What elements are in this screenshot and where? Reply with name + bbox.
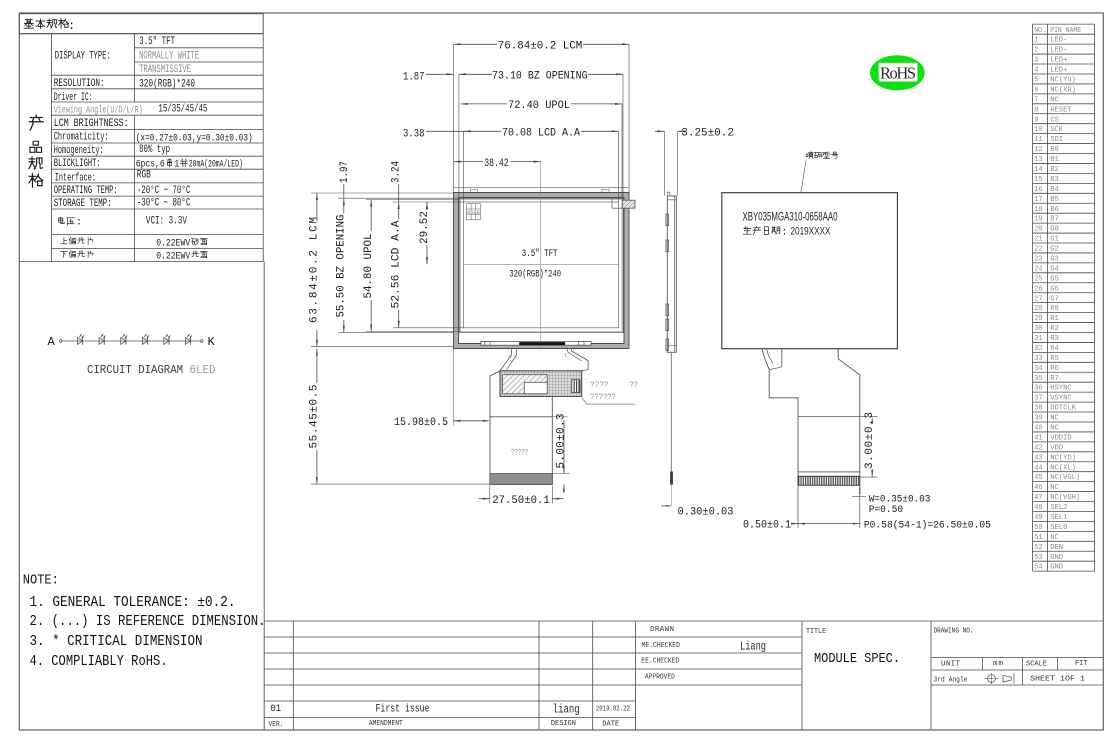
svg-text:30: 30 (1034, 325, 1043, 333)
svg-text:12: 12 (1034, 146, 1042, 154)
svg-text:SEL0: SEL0 (1050, 524, 1068, 532)
svg-text:????: ???? (590, 380, 609, 390)
svg-text:LED-: LED- (1050, 47, 1067, 55)
svg-text:G3: G3 (1050, 255, 1059, 263)
svg-text:39: 39 (1034, 415, 1042, 423)
svg-text:01: 01 (270, 703, 281, 715)
svg-text:G2: G2 (1050, 246, 1059, 254)
svg-text:mm: mm (993, 660, 1003, 668)
svg-text:4. COMPLIABLY RoHS.: 4. COMPLIABLY RoHS. (30, 654, 168, 670)
svg-text:Chromaticity:: Chromaticity: (54, 132, 109, 144)
svg-text:51: 51 (1034, 534, 1043, 542)
svg-text:43: 43 (1034, 454, 1043, 462)
svg-text:NORMALLY WHITE: NORMALLY WHITE (139, 50, 199, 62)
svg-text:NC: NC (1050, 484, 1059, 492)
svg-text:B0: B0 (1050, 146, 1059, 154)
svg-text:1: 1 (174, 159, 179, 171)
svg-text:2019XXXX: 2019XXXX (791, 226, 831, 238)
svg-text:52.56 LCD A.A: 52.56 LCD A.A (391, 220, 403, 308)
svg-text:1. GENERAL TOLERANCE: ±0.2.: 1. GENERAL TOLERANCE: ±0.2. (30, 595, 236, 611)
svg-text:??????: ?????? (590, 392, 616, 402)
svg-text:(x=0.27±0.03,y=0.30±0.03): (x=0.27±0.03,y=0.30±0.03) (136, 133, 253, 145)
svg-text:29: 29 (1034, 315, 1042, 323)
svg-text:FIT: FIT (1075, 660, 1088, 668)
svg-text:8: 8 (1034, 106, 1038, 114)
svg-text:2019.02.22: 2019.02.22 (596, 706, 630, 714)
svg-text:MODULE SPEC.: MODULE SPEC. (814, 651, 900, 667)
svg-text:0.30±0.03: 0.30±0.03 (678, 507, 734, 519)
svg-text:72.40 UPOL: 72.40 UPOL (508, 100, 570, 112)
svg-text:R1: R1 (1050, 315, 1059, 323)
svg-text:47: 47 (1034, 494, 1042, 502)
svg-text:Driver IC:: Driver IC: (54, 92, 93, 104)
svg-text:2. (...) IS REFERENCE DIMENSIO: 2. (...) IS REFERENCE DIMENSION. (30, 614, 266, 630)
svg-text:TITLE: TITLE (806, 628, 826, 636)
svg-text:0.22EWV: 0.22EWV (156, 237, 191, 249)
svg-text:P0.58(54-1)=26.50±0.05: P0.58(54-1)=26.50±0.05 (864, 520, 991, 532)
svg-text:TRANSMISSIVE: TRANSMISSIVE (139, 64, 191, 76)
svg-text:R3: R3 (1050, 335, 1059, 343)
svg-text:1: 1 (1034, 37, 1039, 45)
svg-text:22: 22 (1034, 246, 1042, 254)
svg-text:54: 54 (1034, 564, 1043, 572)
svg-text:92: 92 (508, 355, 516, 361)
svg-text:15: 15 (1034, 176, 1043, 184)
svg-text:G7: G7 (1050, 295, 1059, 303)
svg-text:NC: NC (1050, 415, 1059, 423)
svg-text:19: 19 (1034, 216, 1042, 224)
svg-text:55.45±0.5: 55.45±0.5 (309, 385, 321, 449)
svg-text:G4: G4 (1050, 265, 1059, 273)
svg-text:52: 52 (1034, 544, 1042, 552)
svg-text:LED+: LED+ (1050, 57, 1068, 65)
svg-text:NO.: NO. (1034, 27, 1046, 35)
svg-text:27: 27 (1034, 295, 1042, 303)
svg-text:DESIGN: DESIGN (551, 720, 576, 728)
svg-text:B2: B2 (1050, 166, 1059, 174)
svg-text:PIN NAME: PIN NAME (1050, 27, 1081, 35)
svg-text:21: 21 (1034, 236, 1043, 244)
svg-text:0.22EWV: 0.22EWV (156, 250, 191, 262)
svg-text:11: 11 (1034, 136, 1043, 144)
svg-text:VER.: VER. (269, 721, 284, 729)
svg-text:3.38: 3.38 (403, 129, 425, 141)
svg-text:GND: GND (1050, 564, 1063, 572)
svg-text:2: 2 (1034, 47, 1038, 55)
svg-text:Homogeneity:: Homogeneity: (54, 145, 104, 157)
svg-text:44: 44 (1034, 464, 1043, 472)
svg-text:38.42: 38.42 (484, 158, 508, 170)
svg-text:NC(YU): NC(YU) (1050, 77, 1076, 85)
svg-text:APPROVED: APPROVED (645, 674, 675, 682)
svg-text:SEL2: SEL2 (1050, 504, 1067, 512)
svg-text:RGB: RGB (467, 210, 479, 216)
svg-text:42: 42 (1034, 444, 1042, 452)
svg-text:G6: G6 (1050, 285, 1059, 293)
svg-text:25: 25 (1034, 275, 1043, 283)
svg-text:40: 40 (1034, 425, 1043, 433)
svg-text:SCALE: SCALE (1026, 661, 1047, 669)
svg-text:G0: G0 (1050, 226, 1059, 234)
svg-text:33: 33 (1034, 355, 1043, 363)
svg-text:1.87: 1.87 (403, 71, 425, 83)
svg-text:0.50±0.1: 0.50±0.1 (743, 520, 791, 532)
svg-text:NOTE:: NOTE: (23, 573, 59, 589)
svg-text:G5: G5 (1050, 275, 1059, 283)
svg-text:NC(VGH): NC(VGH) (1050, 494, 1080, 502)
svg-text:SHEET 1OF 1: SHEET 1OF 1 (1030, 676, 1086, 684)
svg-text:3. * CRITICAL DIMENSION: 3. * CRITICAL DIMENSION (30, 634, 203, 650)
svg-text:14: 14 (1034, 166, 1043, 174)
svg-text:34: 34 (1034, 365, 1043, 373)
svg-text::: : (68, 19, 75, 33)
svg-text:DRAWING NO.: DRAWING NO. (934, 628, 974, 636)
svg-text:37: 37 (1034, 395, 1042, 403)
svg-text:18: 18 (1034, 206, 1042, 214)
svg-text:LED-: LED- (1050, 37, 1067, 45)
svg-text:SDI: SDI (1050, 136, 1063, 144)
svg-text:31: 31 (1034, 335, 1043, 343)
svg-text:DRAWN: DRAWN (650, 626, 674, 634)
svg-text::: : (782, 228, 788, 239)
svg-text:NC(YD): NC(YD) (1050, 454, 1076, 462)
svg-text:50: 50 (1034, 524, 1043, 532)
svg-text:VSYNC: VSYNC (1050, 395, 1072, 403)
svg-text:-30°C ~ 80°C: -30°C ~ 80°C (137, 197, 191, 209)
svg-text:DEN: DEN (1050, 544, 1063, 552)
svg-text:55.50 BZ OPENING: 55.50 BZ OPENING (336, 215, 348, 318)
svg-text:B1: B1 (1050, 156, 1059, 164)
svg-text:DISPLAY TYPE:: DISPLAY TYPE: (55, 51, 111, 63)
svg-text:B4: B4 (1050, 186, 1059, 194)
svg-text:3.24: 3.24 (390, 161, 402, 183)
svg-text:73.10 BZ OPENING: 73.10 BZ OPENING (492, 71, 588, 83)
svg-text:45: 45 (1034, 474, 1043, 482)
svg-text:R4: R4 (1050, 345, 1059, 353)
svg-text:B6: B6 (1050, 206, 1059, 214)
svg-text:-20°C ~ 70°C: -20°C ~ 70°C (137, 185, 191, 197)
svg-text:CIRCUIT DIAGRAM: CIRCUIT DIAGRAM (87, 363, 183, 377)
svg-text:49: 49 (1034, 514, 1042, 522)
svg-text:35: 35 (1034, 375, 1043, 383)
svg-text:R5: R5 (1050, 355, 1059, 363)
svg-text:48: 48 (1034, 504, 1042, 512)
svg-text:4: 4 (1034, 67, 1039, 75)
svg-text:P=0.50: P=0.50 (869, 504, 904, 516)
svg-text:LED+: LED+ (1050, 67, 1068, 75)
svg-text:15/35/45/45: 15/35/45/45 (158, 104, 207, 116)
svg-text:Liang: Liang (740, 640, 766, 654)
svg-text:3.5″ TFT: 3.5″ TFT (139, 36, 175, 48)
svg-text:80% typ: 80% typ (139, 144, 170, 156)
svg-text:6: 6 (1034, 86, 1039, 94)
svg-text:RoHS: RoHS (880, 64, 916, 83)
svg-text:20: 20 (1034, 226, 1043, 234)
svg-text:UNIT: UNIT (941, 661, 960, 669)
svg-text:5.00±0.3: 5.00±0.3 (556, 414, 568, 469)
svg-text:36: 36 (1034, 385, 1043, 393)
svg-text:liang: liang (553, 703, 580, 717)
svg-text:46: 46 (1034, 484, 1043, 492)
svg-text:15.98±0.5: 15.98±0.5 (394, 417, 448, 429)
svg-text:SCK: SCK (1050, 126, 1063, 134)
svg-text:3.00±0.3: 3.00±0.3 (864, 412, 876, 469)
svg-text:R6: R6 (1050, 365, 1059, 373)
svg-text:K: K (208, 335, 216, 349)
svg-text:53: 53 (1034, 554, 1043, 562)
svg-text:41: 41 (1034, 434, 1043, 442)
svg-text:16: 16 (1034, 186, 1043, 194)
svg-text:9: 9 (1034, 116, 1038, 124)
svg-text:76.84±0.2 LCM: 76.84±0.2 LCM (498, 41, 583, 53)
svg-text:DATE: DATE (602, 721, 619, 729)
svg-text:17: 17 (1034, 196, 1042, 204)
svg-text::: : (76, 218, 82, 229)
svg-text:XBY035MGA310-0658AA0: XBY035MGA310-0658AA0 (743, 211, 838, 223)
svg-text:20mA(20mA/LED): 20mA(20mA/LED) (189, 159, 243, 171)
svg-text:32: 32 (1034, 345, 1042, 353)
svg-text:3.5″ TFT: 3.5″ TFT (522, 248, 558, 260)
svg-text:LCM BRIGHTNESS:: LCM BRIGHTNESS: (54, 118, 129, 130)
svg-text:3: 3 (1034, 57, 1039, 65)
svg-text:10: 10 (1034, 126, 1043, 134)
svg-text:R2: R2 (1050, 325, 1059, 333)
svg-text:70.08 LCD A.A: 70.08 LCD A.A (502, 128, 580, 140)
svg-text:7: 7 (1034, 96, 1038, 104)
svg-text:RESET: RESET (1050, 106, 1072, 114)
svg-text:29.52: 29.52 (419, 211, 431, 244)
svg-text:38: 38 (1034, 405, 1042, 413)
svg-text:G1: G1 (1050, 236, 1059, 244)
svg-text:BLICKLIGHT:: BLICKLIGHT: (54, 158, 101, 170)
svg-text:28: 28 (1034, 305, 1042, 313)
svg-text:HSYNC: HSYNC (1050, 385, 1072, 393)
svg-text:320(RGB)*240: 320(RGB)*240 (509, 269, 561, 281)
svg-text:6LED: 6LED (190, 363, 216, 377)
svg-text:??: ?? (630, 380, 639, 390)
svg-text:OPERATING TEMP:: OPERATING TEMP: (54, 185, 118, 197)
svg-text:NC(XR): NC(XR) (1050, 86, 1076, 94)
svg-text:Interface:: Interface: (55, 172, 96, 184)
svg-text:B5: B5 (1050, 196, 1059, 204)
svg-text:B7: B7 (1050, 216, 1059, 224)
svg-text:STORAGE TEMP:: STORAGE TEMP: (54, 198, 112, 210)
svg-text:Viewing Angle(U/D/L/R): Viewing Angle(U/D/L/R) (54, 105, 143, 117)
svg-text:27.50±0.1: 27.50±0.1 (492, 495, 550, 507)
svg-text:NC: NC (1050, 534, 1059, 542)
svg-text:A: A (48, 335, 56, 349)
svg-text:NC: NC (1050, 425, 1059, 433)
svg-text:3rd Angle: 3rd Angle (934, 676, 968, 684)
svg-text:23: 23 (1034, 255, 1043, 263)
svg-text:DOTCLK: DOTCLK (1050, 405, 1076, 413)
svg-text:NC(XL): NC(XL) (1050, 464, 1076, 472)
svg-text:R0: R0 (1050, 305, 1059, 313)
svg-text:?????: ????? (511, 449, 528, 458)
svg-text:26: 26 (1034, 285, 1043, 293)
svg-text:54.80 UPOL: 54.80 UPOL (363, 234, 375, 299)
svg-text:SEL1: SEL1 (1050, 514, 1068, 522)
svg-text:320(RGB)*240: 320(RGB)*240 (139, 78, 195, 90)
svg-text:24: 24 (1034, 265, 1043, 273)
svg-text:First issue: First issue (376, 703, 430, 715)
svg-text:ME.CHECKED: ME.CHECKED (642, 642, 681, 650)
svg-text:RGB: RGB (137, 170, 151, 182)
svg-text:1: 1 (564, 353, 567, 359)
svg-text:VDD: VDD (1050, 444, 1063, 452)
svg-text:EE.CHECKED: EE.CHECKED (641, 658, 679, 666)
svg-text:R7: R7 (1050, 375, 1059, 383)
svg-text:CS: CS (1050, 116, 1059, 124)
svg-text:VDDID: VDDID (1050, 434, 1072, 442)
svg-text:13: 13 (1034, 156, 1043, 164)
svg-text:NC: NC (1050, 96, 1059, 104)
svg-text:RESOLUTION:: RESOLUTION: (54, 78, 105, 90)
svg-text:VCI: 3.3V: VCI: 3.3V (146, 216, 187, 228)
svg-text:NC(VGL): NC(VGL) (1050, 474, 1080, 482)
svg-text:AMENDMENT: AMENDMENT (369, 720, 403, 728)
svg-text:GND: GND (1050, 554, 1063, 562)
svg-text:3.25±0.2: 3.25±0.2 (681, 128, 734, 140)
svg-text:B3: B3 (1050, 176, 1059, 184)
svg-text:1.97: 1.97 (339, 161, 351, 183)
svg-text:5: 5 (1034, 77, 1039, 85)
